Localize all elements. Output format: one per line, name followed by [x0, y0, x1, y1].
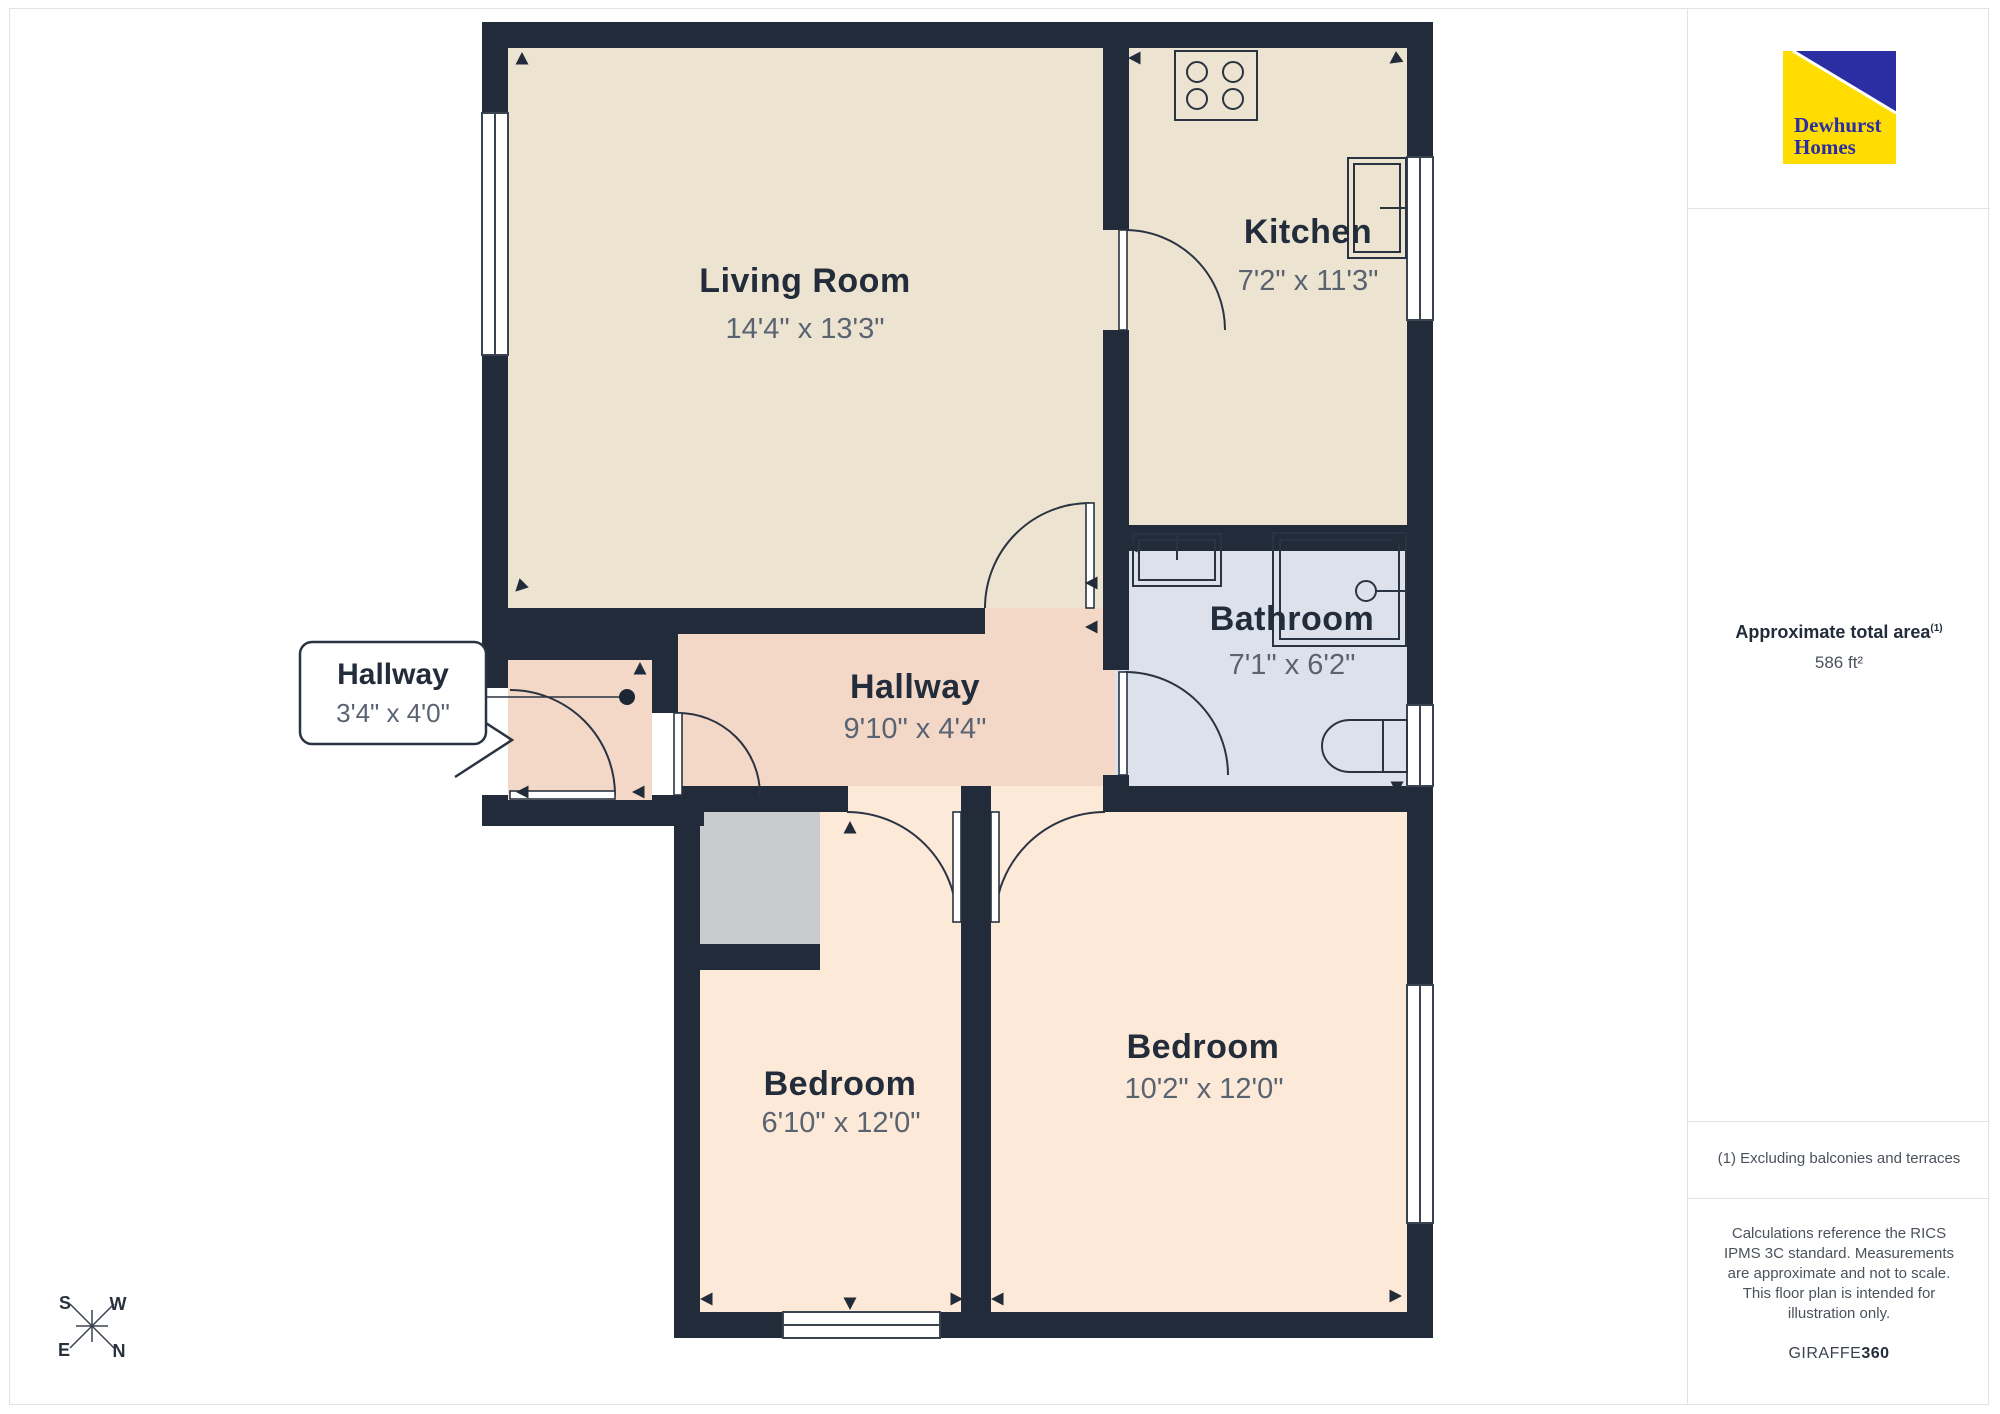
area-footnote: (1) Excluding balconies and terraces [1688, 1150, 1990, 1167]
window [1407, 157, 1433, 320]
total-area-label-text: Approximate total area [1735, 622, 1930, 642]
window [783, 1312, 940, 1338]
compass: S W E N [58, 1293, 127, 1361]
credit-bold: 360 [1861, 1345, 1889, 1362]
room-label: Bedroom [764, 1065, 917, 1103]
compass-w: W [110, 1294, 127, 1314]
total-area-label: Approximate total area(1) [1688, 622, 1990, 643]
room-dimensions: 7'1" x 6'2" [1229, 649, 1356, 681]
room-label: Hallway [337, 658, 449, 691]
compass-e: E [58, 1340, 70, 1360]
room-label: Hallway [850, 668, 980, 706]
disclaimer-text: Calculations reference the RICS IPMS 3C … [1688, 1224, 1990, 1324]
credit-normal: GIRAFFE [1788, 1345, 1861, 1362]
room-label: Bedroom [1127, 1028, 1280, 1066]
brand-name-line1: Dewhurst [1794, 113, 1882, 137]
section-divider [1688, 1121, 1990, 1122]
compass-s: S [59, 1293, 71, 1313]
floorplan: Living Room 14'4" x 13'3" Kitchen 7'2" x… [0, 0, 2000, 1414]
room-dimensions: 9'10" x 4'4" [844, 713, 987, 745]
room-label: Kitchen [1244, 213, 1372, 251]
window [482, 113, 508, 355]
sidebar-divider [1687, 9, 1688, 1405]
brand-name-line2: Homes [1794, 135, 1856, 159]
room-dimensions: 6'10" x 12'0" [761, 1107, 920, 1139]
total-area-value: 586 ft² [1688, 653, 1990, 673]
room-label: Bathroom [1210, 600, 1375, 638]
brand-logo: Dewhurst Homes [1783, 51, 1896, 164]
room-dimensions: 7'2" x 11'3" [1238, 265, 1379, 297]
giraffe360-credit: GIRAFFE360 [1688, 1345, 1990, 1363]
compass-n: N [113, 1341, 126, 1361]
room-label: Living Room [699, 262, 910, 300]
section-divider [1688, 208, 1990, 209]
storage-floor [700, 812, 820, 944]
window [1407, 985, 1433, 1223]
section-divider [1688, 1198, 1990, 1199]
brand-logo-icon: Dewhurst Homes [1783, 51, 1896, 164]
room-dimensions: 10'2" x 12'0" [1124, 1073, 1283, 1105]
entrance-hallway-floor [508, 640, 652, 812]
total-area-section: Approximate total area(1) 586 ft² [1688, 622, 1990, 673]
callout-dot [619, 689, 635, 705]
room-dimensions: 14'4" x 13'3" [725, 313, 884, 345]
room-dimensions: 3'4" x 4'0" [336, 698, 450, 728]
total-area-footnote-marker: (1) [1930, 623, 1942, 634]
compass-rose [70, 1304, 114, 1348]
window [1407, 705, 1433, 786]
